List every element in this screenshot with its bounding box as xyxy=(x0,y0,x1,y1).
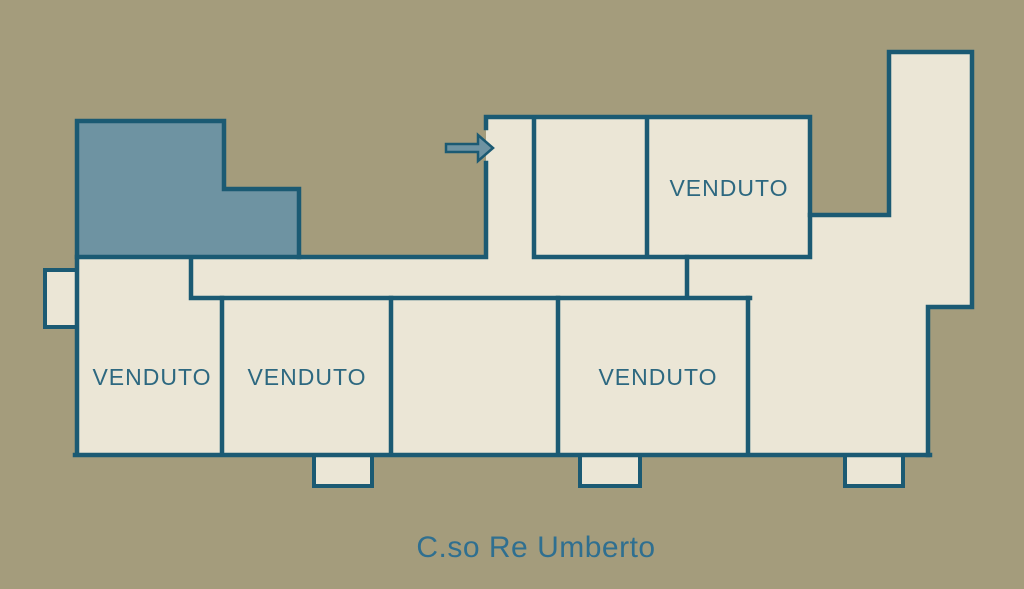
corridor-area xyxy=(191,257,750,298)
balcony-tab-3 xyxy=(845,455,903,486)
left-annex xyxy=(45,270,77,327)
unit-right-wing[interactable] xyxy=(750,259,926,453)
sold-label-bottom-left: VENDUTO xyxy=(92,364,211,390)
unit-bottom-1[interactable] xyxy=(79,259,220,453)
street-name: C.so Re Umberto xyxy=(416,531,655,564)
upper-step-area xyxy=(810,215,890,257)
sold-label-bottom-mid-right: VENDUTO xyxy=(598,364,717,390)
sold-label-top: VENDUTO xyxy=(669,175,788,201)
balcony-tab-2 xyxy=(580,455,640,486)
unit-bottom-3[interactable] xyxy=(393,300,556,453)
unit-top-middle[interactable] xyxy=(536,119,645,255)
floor-plan-canvas: VENDUTO VENDUTO VENDUTO VENDUTO C.so Re … xyxy=(0,0,1024,589)
balcony-tab-1 xyxy=(314,455,372,486)
sold-label-bottom-mid-left: VENDUTO xyxy=(247,364,366,390)
